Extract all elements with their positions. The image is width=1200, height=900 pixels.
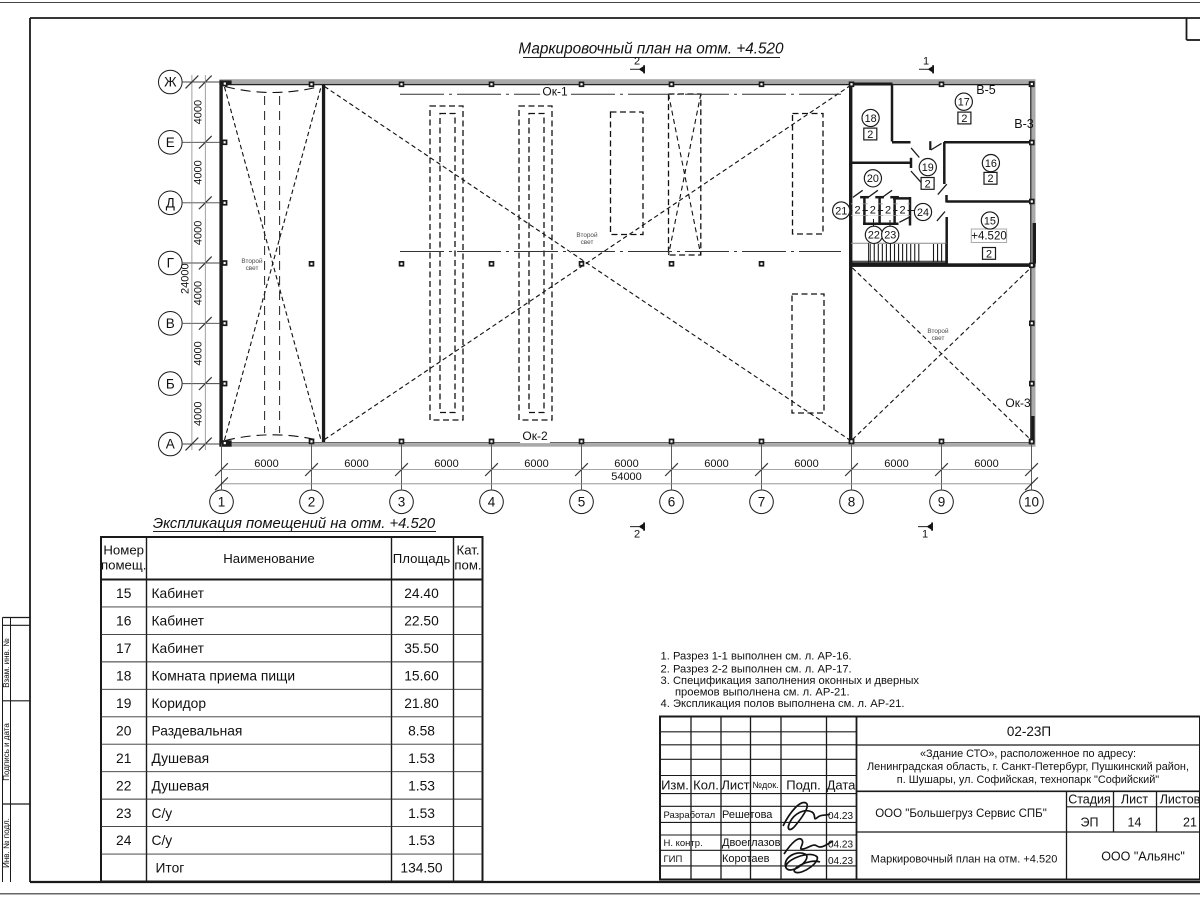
svg-text:2: 2: [986, 248, 992, 260]
svg-text:Ок-3: Ок-3: [1005, 396, 1031, 410]
svg-text:6000: 6000: [614, 458, 638, 470]
svg-text:1.53: 1.53: [408, 751, 435, 766]
svg-text:Подп.: Подп.: [786, 778, 821, 793]
svg-text:1: 1: [218, 495, 226, 510]
svg-text:ЭП: ЭП: [1081, 816, 1099, 830]
svg-text:6000: 6000: [974, 458, 998, 470]
svg-text:8: 8: [848, 495, 856, 510]
svg-text:Лист: Лист: [721, 778, 749, 793]
svg-text:Маркировочный план на отм. +4.: Маркировочный план на отм. +4.520: [518, 41, 784, 58]
svg-text:Кат.: Кат.: [457, 543, 480, 558]
svg-text:6000: 6000: [884, 458, 908, 470]
svg-text:2: 2: [987, 173, 993, 185]
svg-text:Кабинет: Кабинет: [152, 586, 205, 601]
svg-text:свет: свет: [932, 335, 945, 342]
svg-text:В: В: [166, 316, 175, 331]
svg-text:«Здание СТО», расположенное по: «Здание СТО», расположенное по адресу:: [920, 748, 1136, 760]
svg-text:24: 24: [917, 207, 929, 219]
svg-text:Разработал: Разработал: [664, 810, 716, 821]
svg-text:3: 3: [398, 495, 406, 510]
svg-text:2. Разрез 2-2 выполнен см. л.: 2. Разрез 2-2 выполнен см. л. АР-17.: [661, 663, 852, 675]
svg-text:ГИП: ГИП: [664, 854, 683, 865]
svg-text:Решетова: Решетова: [722, 809, 773, 821]
svg-text:134.50: 134.50: [400, 861, 443, 876]
svg-text:Ок-2: Ок-2: [522, 429, 548, 443]
svg-text:Ок-1: Ок-1: [542, 85, 568, 99]
svg-text:свет: свет: [246, 265, 259, 272]
svg-text:Итог: Итог: [156, 861, 185, 876]
svg-text:Н. контр.: Н. контр.: [664, 838, 703, 849]
svg-text:2: 2: [885, 205, 891, 217]
svg-text:22: 22: [116, 778, 131, 793]
svg-text:22: 22: [868, 230, 880, 242]
svg-text:Экспликация помещений на отм.: Экспликация помещений на отм. +4.520: [153, 516, 436, 532]
svg-text:5: 5: [578, 495, 586, 510]
svg-text:4000: 4000: [193, 100, 205, 124]
svg-text:04.23: 04.23: [828, 811, 853, 822]
svg-text:Площадь: Площадь: [393, 551, 451, 566]
svg-text:4: 4: [488, 495, 496, 510]
svg-text:С/у: С/у: [152, 806, 173, 821]
svg-text:1: 1: [923, 56, 929, 68]
svg-text:24: 24: [116, 833, 132, 848]
svg-text:22.50: 22.50: [404, 614, 439, 629]
svg-text:2: 2: [899, 205, 905, 217]
svg-text:18: 18: [116, 668, 132, 683]
svg-text:В-3: В-3: [1014, 117, 1034, 131]
svg-text:1.53: 1.53: [408, 806, 435, 821]
svg-text:6000: 6000: [794, 458, 818, 470]
svg-text:Кабинет: Кабинет: [152, 641, 205, 656]
svg-text:6000: 6000: [704, 458, 728, 470]
svg-text:2: 2: [634, 56, 640, 68]
svg-text:6000: 6000: [434, 458, 458, 470]
svg-text:Второй: Второй: [241, 257, 263, 265]
svg-text:2: 2: [854, 205, 860, 217]
svg-text:35.50: 35.50: [404, 641, 439, 656]
svg-text:18: 18: [865, 113, 877, 125]
svg-text:ООО "Большегруз Сервис СПБ": ООО "Большегруз Сервис СПБ": [875, 808, 1047, 820]
svg-text:Коротаев: Коротаев: [722, 853, 770, 865]
svg-text:6000: 6000: [344, 458, 368, 470]
svg-text:16: 16: [985, 158, 997, 170]
svg-text:23: 23: [116, 806, 132, 821]
svg-text:помещ.: помещ.: [101, 558, 146, 573]
svg-text:4000: 4000: [193, 402, 205, 426]
svg-text:21: 21: [1183, 816, 1197, 830]
svg-text:19: 19: [922, 162, 934, 174]
svg-text:Двоеглазов: Двоеглазов: [722, 837, 781, 849]
svg-text:Маркировочный план на отм. +4.: Маркировочный план на отм. +4.520: [871, 854, 1058, 866]
svg-text:10: 10: [1024, 495, 1039, 510]
svg-text:Наименование: Наименование: [223, 551, 314, 566]
svg-text:+4.520: +4.520: [971, 231, 1007, 243]
svg-text:7: 7: [758, 495, 766, 510]
svg-text:Раздевальная: Раздевальная: [152, 723, 243, 738]
svg-text:04.23: 04.23: [828, 856, 853, 867]
svg-text:Дата: Дата: [827, 778, 857, 793]
svg-text:А: А: [166, 437, 175, 452]
svg-text:15: 15: [116, 586, 132, 601]
svg-text:Кол.: Кол.: [693, 778, 719, 793]
svg-text:Инв. № подл.: Инв. № подл.: [2, 818, 11, 868]
svg-text:21.80: 21.80: [404, 696, 439, 711]
svg-text:20: 20: [867, 173, 879, 185]
svg-text:6000: 6000: [524, 458, 548, 470]
svg-text:21: 21: [835, 205, 847, 217]
svg-text:Второй: Второй: [927, 327, 949, 335]
svg-text:1. Разрез 1-1 выполнен см. л.: 1. Разрез 1-1 выполнен см. л. АР-16.: [661, 651, 852, 663]
svg-text:1.53: 1.53: [408, 778, 435, 793]
svg-text:Ж: Ж: [164, 75, 177, 90]
svg-text:Комната приема пищи: Комната приема пищи: [152, 668, 296, 683]
svg-text:1.53: 1.53: [408, 833, 435, 848]
svg-text:Б: Б: [166, 376, 175, 391]
svg-text:4000: 4000: [193, 221, 205, 245]
svg-text:Листов: Листов: [1160, 793, 1200, 807]
svg-text:проемов выполнена см. л. АР-21: проемов выполнена см. л. АР-21.: [675, 687, 850, 699]
svg-text:ООО "Альянс": ООО "Альянс": [1101, 850, 1185, 864]
svg-text:8.58: 8.58: [408, 723, 435, 738]
svg-text:2: 2: [634, 529, 640, 541]
svg-text:15: 15: [984, 215, 996, 227]
svg-text:В-5: В-5: [976, 83, 996, 97]
svg-text:Д: Д: [166, 196, 175, 211]
svg-text:Стадия: Стадия: [1068, 793, 1111, 807]
svg-text:Коридор: Коридор: [152, 696, 207, 711]
svg-text:54000: 54000: [611, 471, 642, 483]
svg-text:2: 2: [961, 113, 967, 125]
svg-text:24000: 24000: [180, 263, 192, 294]
svg-text:№док.: №док.: [752, 780, 778, 790]
svg-text:Взам. инв. №: Взам. инв. №: [2, 638, 11, 688]
svg-text:02-23П: 02-23П: [1007, 724, 1051, 739]
svg-text:свет: свет: [581, 239, 594, 246]
svg-text:3. Спецификация заполнения око: 3. Спецификация заполнения оконных и две…: [661, 675, 920, 687]
svg-text:Подпись и дата: Подпись и дата: [2, 723, 11, 781]
svg-text:15.60: 15.60: [404, 668, 439, 683]
svg-text:2: 2: [925, 178, 931, 190]
svg-text:п. Шушары, ул. Софийская, техн: п. Шушары, ул. Софийская, технопарк "Соф…: [897, 774, 1160, 786]
svg-text:Номер: Номер: [103, 543, 144, 558]
svg-text:С/у: С/у: [152, 833, 173, 848]
svg-text:2: 2: [308, 495, 316, 510]
svg-text:Душевая: Душевая: [152, 778, 210, 793]
svg-text:23: 23: [884, 230, 896, 242]
svg-text:19: 19: [116, 696, 132, 711]
svg-text:2: 2: [867, 129, 873, 141]
svg-text:1: 1: [922, 529, 928, 541]
svg-text:Лист: Лист: [1121, 793, 1148, 807]
svg-text:4000: 4000: [193, 341, 205, 365]
svg-text:20: 20: [116, 723, 132, 738]
svg-text:4000: 4000: [193, 160, 205, 184]
svg-text:Е: Е: [166, 135, 175, 150]
svg-text:Изм.: Изм.: [661, 778, 689, 793]
svg-text:Г: Г: [167, 256, 175, 271]
svg-text:9: 9: [938, 495, 946, 510]
svg-text:Ленинградская область, г. Санк: Ленинградская область, г. Санкт-Петербур…: [867, 761, 1189, 773]
svg-text:Второй: Второй: [576, 231, 598, 239]
svg-text:17: 17: [116, 641, 131, 656]
svg-text:24.40: 24.40: [404, 586, 439, 601]
svg-text:2: 2: [870, 205, 876, 217]
svg-text:пом.: пом.: [454, 558, 481, 573]
svg-text:21: 21: [116, 751, 131, 766]
svg-text:16: 16: [116, 614, 132, 629]
svg-text:17: 17: [958, 97, 970, 109]
svg-text:Кабинет: Кабинет: [152, 614, 205, 629]
svg-text:4. Экспликация полов выполнена: 4. Экспликация полов выполнена см. л. АР…: [661, 698, 905, 710]
svg-text:6000: 6000: [254, 458, 278, 470]
svg-text:14: 14: [1128, 816, 1142, 830]
svg-text:Душевая: Душевая: [152, 751, 210, 766]
svg-text:6: 6: [668, 495, 676, 510]
svg-text:4000: 4000: [193, 281, 205, 305]
